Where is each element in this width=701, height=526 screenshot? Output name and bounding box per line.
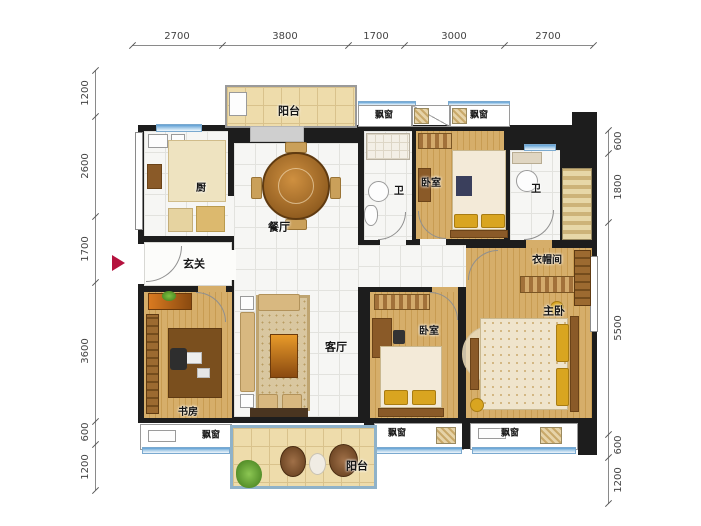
ac-unit-sketch bbox=[436, 427, 456, 444]
plant-icon bbox=[236, 460, 262, 488]
study-door-gap bbox=[198, 286, 226, 292]
ac-unit-sketch bbox=[414, 108, 429, 124]
dim-left-2: 2600 bbox=[81, 153, 91, 178]
chair bbox=[393, 330, 405, 344]
pillow bbox=[454, 214, 478, 228]
dim-top-3: 1700 bbox=[363, 32, 388, 42]
bedroom-top-door-gap bbox=[420, 239, 446, 245]
bath-cabinet bbox=[512, 152, 542, 164]
master-bed bbox=[480, 318, 568, 410]
entry-label: 玄关 bbox=[183, 259, 205, 270]
dim-top-5: 2700 bbox=[535, 32, 560, 42]
dining-chair bbox=[330, 177, 341, 199]
bedroom2-door-gap bbox=[432, 287, 458, 292]
cloakroom-label: 衣帽间 bbox=[532, 256, 562, 266]
window-sketch bbox=[148, 430, 176, 442]
bath2-door-gap bbox=[526, 240, 552, 248]
balcony-cabinet bbox=[229, 92, 247, 116]
sofa bbox=[240, 312, 255, 392]
dim-tick bbox=[92, 487, 99, 494]
dim-left-6: 1200 bbox=[81, 454, 91, 479]
dim-right-3: 5500 bbox=[614, 315, 624, 340]
master-window bbox=[590, 256, 598, 332]
pillow bbox=[481, 214, 505, 228]
wall-stub bbox=[578, 423, 597, 455]
ac-unit-sketch bbox=[540, 427, 562, 444]
bay-window-label: 飘窗 bbox=[470, 112, 488, 121]
dining-chair bbox=[251, 177, 262, 199]
dining-table-ring bbox=[278, 168, 314, 204]
bedroom-top-label: 卧室 bbox=[421, 179, 441, 189]
dim-right-1: 600 bbox=[614, 131, 624, 150]
entry-opening bbox=[230, 250, 236, 280]
shower bbox=[366, 133, 410, 160]
wardrobe bbox=[374, 294, 430, 310]
bay-window-sill bbox=[472, 447, 576, 454]
headboard bbox=[378, 408, 444, 417]
entry-door-gap bbox=[138, 244, 144, 284]
dining-label: 餐厅 bbox=[268, 222, 290, 233]
wardrobe bbox=[574, 250, 591, 306]
dim-right-2: 1800 bbox=[614, 174, 624, 199]
dim-top-4: 3000 bbox=[441, 32, 466, 42]
side-table bbox=[240, 296, 254, 310]
tv-cabinet bbox=[250, 408, 308, 417]
dim-right-4: 600 bbox=[614, 435, 624, 454]
pillow bbox=[556, 368, 569, 406]
wardrobe bbox=[418, 133, 452, 149]
balcony-door-opening bbox=[250, 126, 304, 142]
sink bbox=[368, 181, 389, 202]
kitchen-window bbox=[156, 124, 202, 132]
headboard bbox=[450, 230, 508, 238]
study-label: 书房 bbox=[178, 408, 198, 418]
wall-stub bbox=[572, 112, 597, 126]
desk-papers bbox=[186, 352, 202, 364]
corridor-floor bbox=[358, 245, 466, 287]
master-bedroom-label: 主卧 bbox=[543, 306, 565, 317]
bay-window-label: 飘窗 bbox=[202, 432, 220, 441]
dim-left-1: 1200 bbox=[81, 80, 91, 105]
dim-left-4: 3600 bbox=[81, 338, 91, 363]
bookshelf bbox=[146, 314, 159, 414]
bay-window-label: 飘窗 bbox=[375, 112, 393, 121]
toilet bbox=[364, 205, 378, 226]
side-table bbox=[240, 394, 254, 408]
kitchen-opening bbox=[228, 196, 234, 236]
balcony-top-label: 阳台 bbox=[278, 106, 300, 117]
dim-left-5: 600 bbox=[81, 422, 91, 441]
bath2-label: 卫 bbox=[531, 185, 541, 195]
ac-unit-sketch bbox=[452, 108, 467, 124]
dim-right-5: 1200 bbox=[614, 467, 624, 492]
stool bbox=[470, 398, 484, 412]
kitchen-counter-sink bbox=[148, 134, 168, 148]
pillow bbox=[384, 390, 408, 405]
bed-bench bbox=[470, 338, 479, 390]
dim-line-top bbox=[132, 45, 593, 46]
storage-shelves bbox=[562, 168, 592, 240]
bath2-window bbox=[524, 144, 556, 151]
plant-icon bbox=[162, 291, 176, 301]
coffee-table bbox=[270, 334, 298, 378]
living-label: 客厅 bbox=[325, 342, 347, 353]
desk-chair bbox=[170, 348, 187, 370]
bay-window-label: 飘窗 bbox=[501, 430, 519, 439]
loveseat bbox=[258, 294, 300, 311]
kitchen-cabinet bbox=[168, 208, 193, 232]
bath1-label: 卫 bbox=[394, 187, 404, 197]
headboard bbox=[570, 316, 579, 412]
dim-top-1: 2700 bbox=[164, 32, 189, 42]
bay-window-sill bbox=[142, 447, 230, 454]
balcony-chair bbox=[280, 446, 306, 477]
balcony-bottom-label: 阳台 bbox=[346, 461, 368, 472]
bedroom2-label: 卧室 bbox=[419, 327, 439, 337]
floor-plan-canvas: 2700 3800 1700 3000 2700 1200 2600 1700 … bbox=[0, 0, 701, 526]
dim-left-3: 1700 bbox=[81, 236, 91, 261]
kitchen-side-window bbox=[135, 132, 143, 230]
bed-blanket bbox=[456, 176, 472, 196]
kitchen-label: 厨 bbox=[196, 184, 206, 194]
bath1-door-gap bbox=[380, 240, 406, 245]
pillow bbox=[412, 390, 436, 405]
dim-tick bbox=[590, 42, 597, 49]
desk-papers bbox=[197, 368, 210, 378]
balcony-table bbox=[309, 453, 326, 475]
dim-tick bbox=[605, 500, 612, 507]
kitchen-stove bbox=[196, 206, 225, 232]
bay-window-label: 飘窗 bbox=[388, 430, 406, 439]
dim-line-right bbox=[608, 130, 609, 504]
pillow bbox=[556, 324, 569, 362]
dim-top-2: 3800 bbox=[272, 32, 297, 42]
kitchen-fridge bbox=[147, 164, 162, 189]
bay-window-sill bbox=[376, 447, 462, 454]
entrance-arrow-icon bbox=[112, 255, 125, 271]
